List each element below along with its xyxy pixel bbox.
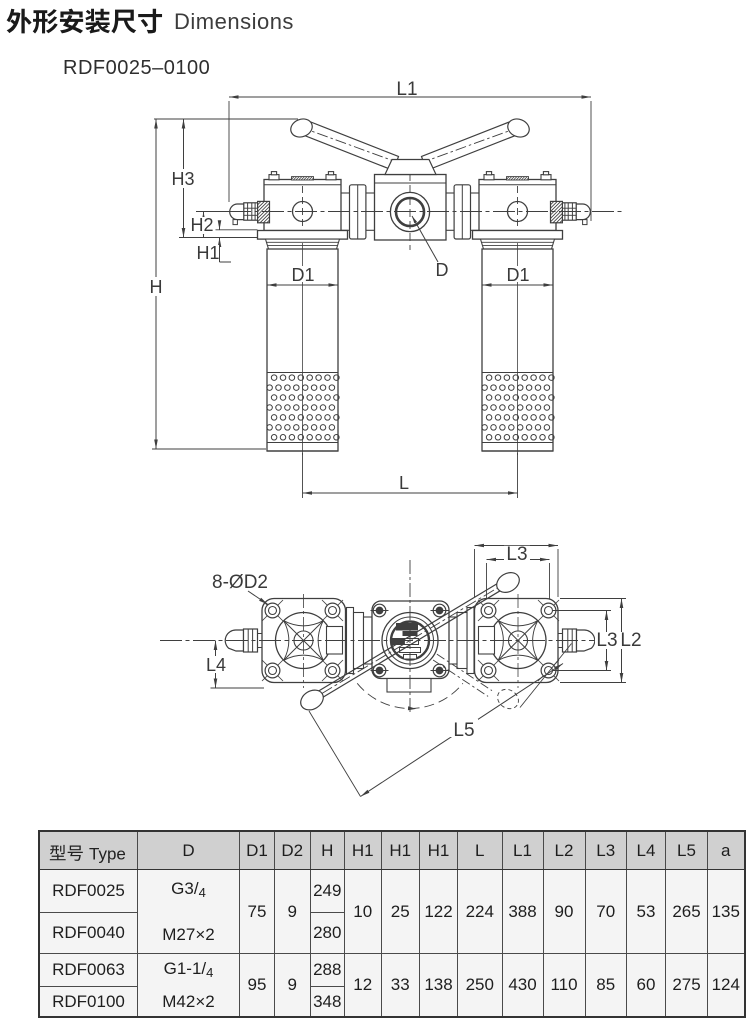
svg-text:L3: L3 bbox=[506, 544, 527, 565]
svg-text:H1: H1 bbox=[196, 243, 219, 263]
svg-text:H: H bbox=[150, 277, 163, 297]
svg-text:L2: L2 bbox=[620, 630, 641, 651]
svg-text:L1: L1 bbox=[396, 79, 417, 100]
svg-text:L: L bbox=[399, 473, 409, 493]
svg-text:8-ØD2: 8-ØD2 bbox=[212, 572, 268, 593]
svg-text:L4: L4 bbox=[206, 655, 226, 675]
svg-text:D1: D1 bbox=[291, 265, 314, 285]
svg-text:D: D bbox=[436, 260, 449, 280]
svg-text:H2: H2 bbox=[190, 215, 213, 235]
svg-text:D1: D1 bbox=[506, 265, 529, 285]
svg-text:L5: L5 bbox=[453, 720, 474, 741]
svg-text:L3: L3 bbox=[596, 630, 617, 651]
svg-text:H3: H3 bbox=[171, 169, 194, 189]
svg-text:Type: Type bbox=[89, 845, 126, 864]
